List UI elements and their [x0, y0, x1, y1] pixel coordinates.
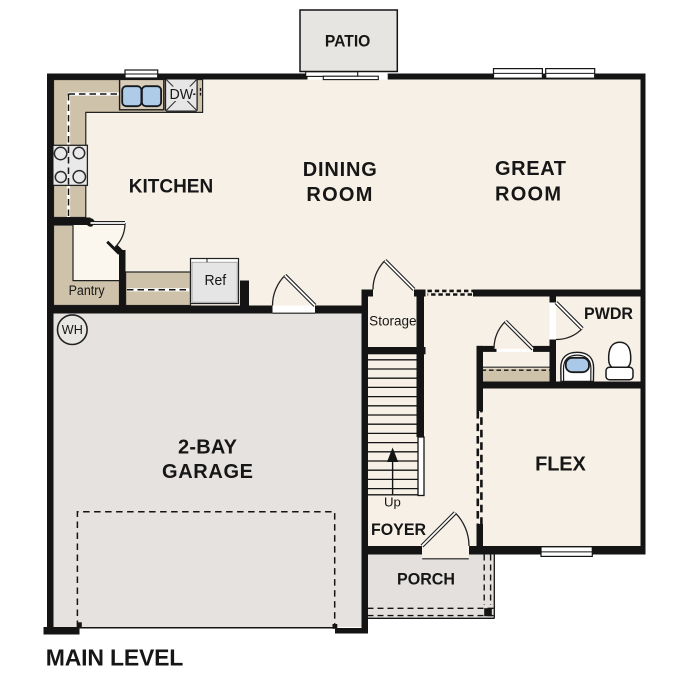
- svg-text:FOYER: FOYER: [371, 520, 426, 539]
- svg-text:PORCH: PORCH: [397, 569, 455, 588]
- svg-text:GREAT: GREAT: [495, 158, 566, 180]
- svg-text:PWDR: PWDR: [584, 304, 633, 323]
- svg-text:GARAGE: GARAGE: [162, 461, 253, 483]
- svg-text:Pantry: Pantry: [69, 283, 105, 298]
- svg-text:FLEX: FLEX: [535, 454, 586, 476]
- svg-text:WH: WH: [62, 322, 83, 337]
- svg-text:KITCHEN: KITCHEN: [129, 177, 213, 198]
- svg-text:PATIO: PATIO: [325, 32, 371, 51]
- svg-text:DINING: DINING: [303, 159, 377, 181]
- svg-text:DW: DW: [170, 87, 194, 103]
- svg-text:ROOM: ROOM: [306, 184, 372, 206]
- svg-text:Up: Up: [384, 495, 401, 510]
- svg-text:Storage: Storage: [369, 314, 416, 329]
- svg-text:MAIN LEVEL: MAIN LEVEL: [46, 644, 184, 670]
- svg-text:2-BAY: 2-BAY: [178, 437, 238, 459]
- svg-text:ROOM: ROOM: [495, 184, 561, 206]
- svg-text:Ref: Ref: [204, 272, 226, 289]
